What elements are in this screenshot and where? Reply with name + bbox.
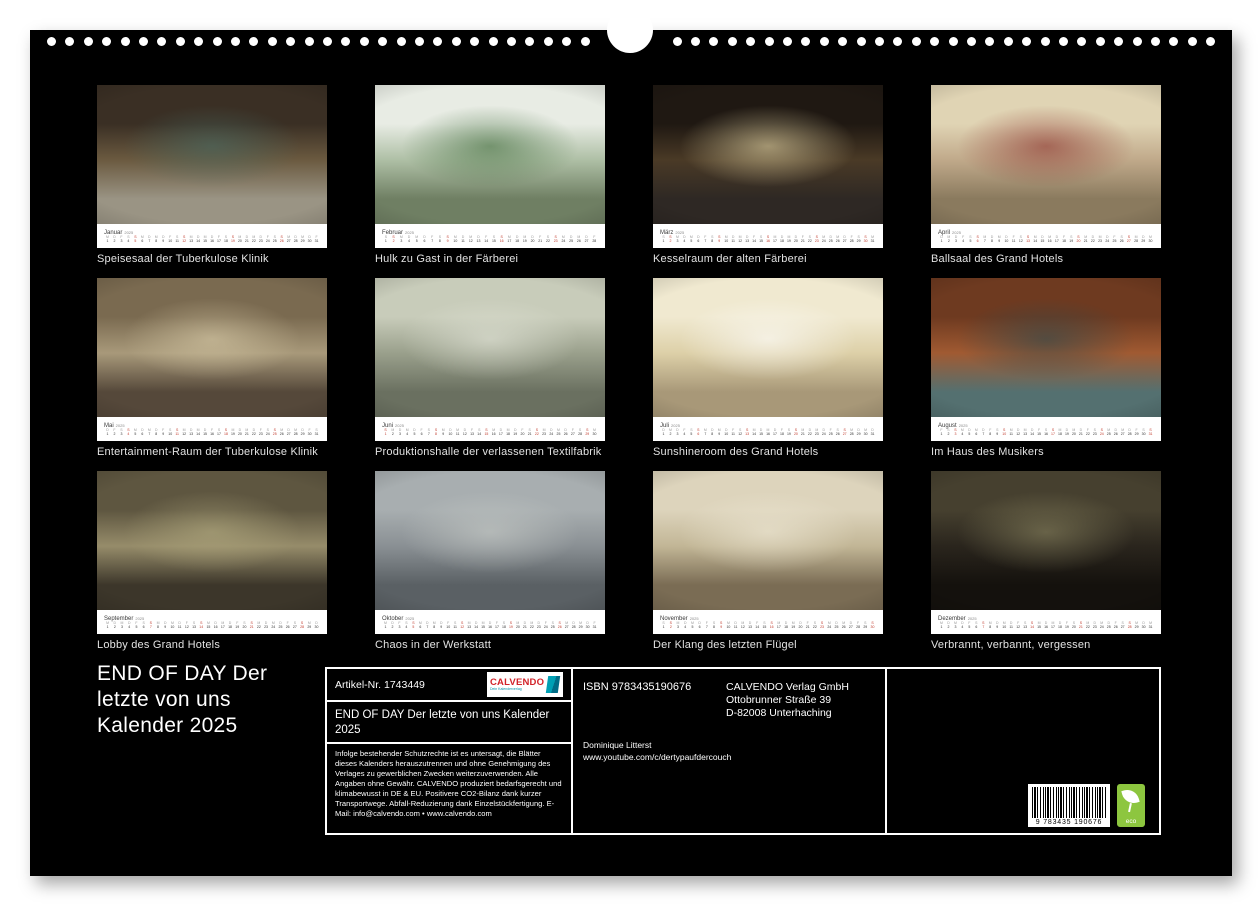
mini-calendar-day: M14 bbox=[751, 428, 758, 436]
mini-calendar-day: D18 bbox=[778, 235, 785, 243]
mini-calendar-day: S8 bbox=[709, 235, 716, 243]
month-photo bbox=[97, 471, 327, 610]
mini-calendar-day: F13 bbox=[468, 428, 475, 436]
mini-calendar-day: M27 bbox=[563, 621, 570, 629]
binding-hole bbox=[893, 37, 902, 46]
mini-calendar-strip: März2025 S1S2M3D4M5D6F7S8S9M10D11M12D13F… bbox=[653, 224, 883, 248]
mini-calendar-day: M12 bbox=[739, 621, 746, 629]
mini-calendar-day: D2 bbox=[111, 235, 118, 243]
mini-calendar-day: S4 bbox=[125, 428, 132, 436]
mini-calendar-day: D10 bbox=[447, 428, 454, 436]
calendar-title: END OF DAY Der letzte von uns Kalender 2… bbox=[97, 661, 267, 739]
mini-calendar-day: S23 bbox=[818, 621, 825, 629]
month-caption: Hulk zu Gast in der Färberei bbox=[375, 253, 605, 265]
mini-calendar-day: M29 bbox=[299, 235, 306, 243]
mini-calendar-day: M12 bbox=[181, 428, 188, 436]
mini-calendar-day: S8 bbox=[432, 428, 439, 436]
binding-hole bbox=[820, 37, 829, 46]
title-line-3: Kalender 2025 bbox=[97, 713, 267, 739]
month-caption: Verbrannt, verbannt, vergessen bbox=[931, 639, 1161, 651]
mini-calendar-day: D22 bbox=[806, 428, 813, 436]
mini-calendar-day: F28 bbox=[848, 235, 855, 243]
mini-calendar-day: M12 bbox=[467, 235, 475, 243]
mini-calendar-day: M6 bbox=[973, 428, 980, 436]
mini-calendar-day: M28 bbox=[292, 428, 299, 436]
mini-calendar-days: D1F2S3S4M5D6M7D8F9S10S11M12D13M14D15F16S… bbox=[104, 428, 320, 436]
mini-calendar-day: D23 bbox=[1091, 621, 1098, 629]
mini-calendar-day: S5 bbox=[967, 235, 974, 243]
mini-calendar-day: S14 bbox=[476, 428, 483, 436]
mini-calendar-day: S11 bbox=[174, 235, 181, 243]
mini-calendar-day: M26 bbox=[575, 235, 583, 243]
mini-calendar-day: M8 bbox=[153, 235, 160, 243]
mini-calendar-day: F31 bbox=[313, 235, 320, 243]
mini-calendar-day: M13 bbox=[466, 621, 473, 629]
mini-calendar-day: S15 bbox=[483, 428, 490, 436]
mini-calendar-day: F4 bbox=[681, 428, 688, 436]
mini-calendar-day: D18 bbox=[782, 621, 789, 629]
month-caption: Entertainment-Raum der Tuberkulose Klini… bbox=[97, 446, 327, 458]
title-line-2: letzte von uns bbox=[97, 687, 267, 713]
month-photo bbox=[97, 85, 327, 224]
mini-calendar-day: D7 bbox=[980, 428, 987, 436]
mini-calendar-days: M1D2M3D4F5S6S7M8D9M10D11F12S13S14M15D16M… bbox=[938, 621, 1154, 629]
mini-calendar-day: F27 bbox=[569, 428, 576, 436]
mini-calendar-day: D8 bbox=[988, 235, 995, 243]
mini-calendar-days: S1M2D3M4D5F6S7S8M9D10M11D12F13S14S15M16D… bbox=[382, 428, 598, 436]
mini-calendar-day: F18 bbox=[778, 428, 785, 436]
mini-calendar-day: S5 bbox=[688, 428, 695, 436]
mini-calendar-day: S19 bbox=[229, 235, 236, 243]
mini-calendar-day: S1 bbox=[382, 428, 389, 436]
calvendo-flag-icon bbox=[546, 676, 560, 693]
mini-calendar-day: M14 bbox=[195, 428, 202, 436]
mini-calendar-day: S24 bbox=[1098, 428, 1105, 436]
month-photo bbox=[97, 278, 327, 417]
mini-calendar-days: D1M2D3F4S5S6M7D8M9D10F11S12S13M14D15M16D… bbox=[938, 235, 1154, 243]
mini-calendar-day: D4 bbox=[959, 621, 966, 629]
mini-calendar-day: M5 bbox=[688, 235, 695, 243]
mini-calendar-day: S16 bbox=[765, 235, 772, 243]
binding-hole bbox=[397, 37, 406, 46]
mini-calendar-day: F31 bbox=[591, 621, 598, 629]
mini-calendar-day: M10 bbox=[451, 235, 459, 243]
mini-calendar-day: M16 bbox=[765, 428, 772, 436]
mini-calendar-day: M3 bbox=[397, 235, 405, 243]
calvendo-logo: CALVENDO Dein Kalenderverlag bbox=[487, 672, 563, 697]
mini-calendar-day: S7 bbox=[147, 621, 154, 629]
mini-calendar-day: M15 bbox=[1036, 621, 1043, 629]
mini-calendar-day: D22 bbox=[1089, 235, 1096, 243]
mini-calendar-day: M23 bbox=[1096, 235, 1103, 243]
mini-calendar-day: S13 bbox=[744, 428, 751, 436]
mini-calendar-day: S12 bbox=[181, 235, 188, 243]
mini-calendar-day: F21 bbox=[804, 621, 811, 629]
mini-calendar-day: M5 bbox=[132, 428, 139, 436]
mini-calendar-day: D13 bbox=[746, 621, 753, 629]
mini-calendar-day: D6 bbox=[139, 428, 146, 436]
mini-calendar-day: D14 bbox=[1029, 428, 1036, 436]
mini-calendar-day: S1 bbox=[382, 235, 390, 243]
mini-calendar-day: D13 bbox=[188, 428, 195, 436]
month-photo bbox=[375, 85, 605, 224]
mini-calendar-day: D23 bbox=[257, 235, 264, 243]
mini-calendar-day: F28 bbox=[854, 621, 861, 629]
mini-calendar-day: M1 bbox=[104, 621, 111, 629]
mini-calendar-day: S30 bbox=[869, 621, 876, 629]
mini-calendar-day: M7 bbox=[981, 235, 988, 243]
mini-calendar-day: M2 bbox=[945, 235, 952, 243]
mini-calendar-day: D5 bbox=[411, 428, 418, 436]
mini-calendar-day: F21 bbox=[799, 235, 806, 243]
author-url: www.youtube.com/c/dertypaufdercouch bbox=[583, 752, 875, 763]
mini-calendar-day: D13 bbox=[475, 235, 483, 243]
mini-calendar-day: M15 bbox=[480, 621, 487, 629]
mini-calendar-day: M25 bbox=[1105, 428, 1112, 436]
mini-calendar-day: M20 bbox=[236, 235, 243, 243]
mini-calendar-day: D30 bbox=[313, 621, 320, 629]
month-caption: Ballsaal des Grand Hotels bbox=[931, 253, 1161, 265]
month-caption: Lobby des Grand Hotels bbox=[97, 639, 327, 651]
month-cell: Dezember2025 M1D2M3D4F5S6S7M8D9M10D11F12… bbox=[931, 471, 1161, 651]
mini-calendar-day: S18 bbox=[500, 621, 507, 629]
mini-calendar-day: M18 bbox=[504, 428, 511, 436]
mini-calendar-day: S28 bbox=[576, 428, 583, 436]
mini-calendar-day: M21 bbox=[1082, 235, 1089, 243]
calvendo-logo-name: CALVENDO bbox=[490, 678, 544, 688]
mini-calendar-day: S20 bbox=[1070, 621, 1077, 629]
mini-calendar-day: S21 bbox=[526, 428, 533, 436]
binding-hole bbox=[1022, 37, 1031, 46]
binding-hole bbox=[249, 37, 258, 46]
binding-hole bbox=[121, 37, 130, 46]
mini-calendar-day: F9 bbox=[160, 428, 167, 436]
mini-calendar-strip: September2025 M1D2M3D4F5S6S7M8D9M10D11F1… bbox=[97, 610, 327, 634]
mini-calendar-day: M8 bbox=[431, 621, 438, 629]
mini-calendar-day: D11 bbox=[732, 621, 739, 629]
mini-calendar-day: D29 bbox=[855, 428, 862, 436]
mini-calendar-day: M4 bbox=[404, 428, 411, 436]
mini-calendar-day: F25 bbox=[1111, 235, 1118, 243]
binding-hole bbox=[305, 37, 314, 46]
binding-hole bbox=[452, 37, 461, 46]
mini-calendar-day: M8 bbox=[154, 621, 161, 629]
mini-calendar-day: D20 bbox=[792, 235, 799, 243]
mini-calendar-day: F21 bbox=[536, 235, 544, 243]
mini-calendar-day: M21 bbox=[243, 428, 250, 436]
mini-calendar-day: D18 bbox=[1056, 621, 1063, 629]
mini-calendar-day: D23 bbox=[535, 621, 542, 629]
mini-calendar-day: S22 bbox=[811, 621, 818, 629]
month-cell: März2025 S1S2M3D4M5D6F7S8S9M10D11M12D13F… bbox=[653, 85, 883, 265]
month-photo bbox=[375, 278, 605, 417]
mini-calendar-day: D11 bbox=[459, 235, 467, 243]
mini-calendar-day: M1 bbox=[104, 235, 111, 243]
mini-calendar-strip: Mai2025 D1F2S3S4M5D6M7D8F9S10S11M12D13M1… bbox=[97, 417, 327, 441]
mini-calendar-day: S14 bbox=[1029, 621, 1036, 629]
mini-calendar-day: S19 bbox=[1068, 235, 1075, 243]
mini-calendar-day: S20 bbox=[241, 621, 248, 629]
mini-calendar-day: S15 bbox=[490, 235, 498, 243]
mini-calendar-day: D7 bbox=[424, 621, 431, 629]
mini-calendar-day: D23 bbox=[262, 621, 269, 629]
mini-calendar-day: D25 bbox=[833, 621, 840, 629]
mini-calendar-day: M12 bbox=[737, 235, 744, 243]
month-cell: Oktober2025 M1D2F3S4S5M6D7M8D9F10S11S12M… bbox=[375, 471, 605, 651]
month-caption: Speisesaal der Tuberkulose Klinik bbox=[97, 253, 327, 265]
mini-calendar-day: S6 bbox=[974, 235, 981, 243]
mini-calendar-days: F1S2S3M4D5M6D7F8S9S10M11D12M13D14F15S16S… bbox=[938, 428, 1154, 436]
mini-calendar-day: D15 bbox=[202, 428, 209, 436]
mini-calendar-day: M26 bbox=[278, 428, 285, 436]
mini-calendar-day: M10 bbox=[1001, 621, 1008, 629]
mini-calendar-day: M26 bbox=[840, 621, 847, 629]
mini-calendar-day: D6 bbox=[421, 235, 429, 243]
publisher-address: CALVENDO Verlag GmbH Ottobrunner Straße … bbox=[726, 681, 849, 720]
mini-calendar-day: M15 bbox=[205, 621, 212, 629]
binding-hole bbox=[323, 37, 332, 46]
binding-hole bbox=[194, 37, 203, 46]
mini-calendar-day: F5 bbox=[966, 621, 973, 629]
month-photo bbox=[653, 278, 883, 417]
mini-calendar-day: D19 bbox=[512, 428, 519, 436]
mini-calendar-day: M22 bbox=[250, 235, 257, 243]
mini-calendar-day: M24 bbox=[560, 235, 568, 243]
mini-calendar-day: D29 bbox=[299, 428, 306, 436]
mini-calendar-day: S9 bbox=[716, 235, 723, 243]
mini-calendar-day: M6 bbox=[417, 621, 424, 629]
mini-calendar-strip: Dezember2025 M1D2M3D4F5S6S7M8D9M10D11F12… bbox=[931, 610, 1161, 634]
mini-calendar-day: D19 bbox=[1063, 428, 1070, 436]
mini-calendar-day: S17 bbox=[216, 428, 223, 436]
mini-calendar-day: M11 bbox=[454, 428, 461, 436]
mini-calendar-day: D16 bbox=[212, 621, 219, 629]
mini-calendar-day: S25 bbox=[549, 621, 556, 629]
mini-calendar-day: D16 bbox=[1043, 621, 1050, 629]
mini-calendar-day: S15 bbox=[761, 621, 768, 629]
mini-calendar-day: S12 bbox=[459, 621, 466, 629]
mini-calendar-day: M10 bbox=[723, 235, 730, 243]
mini-calendar-day: M5 bbox=[413, 235, 421, 243]
mini-calendar-day: D9 bbox=[160, 235, 167, 243]
month-photo bbox=[375, 471, 605, 610]
mini-calendar-day: S18 bbox=[222, 235, 229, 243]
mini-calendar-day: S29 bbox=[862, 621, 869, 629]
mini-calendar-strip: Oktober2025 M1D2F3S4S5M6D7M8D9F10S11S12M… bbox=[375, 610, 605, 634]
month-photo bbox=[931, 85, 1161, 224]
binding-hole bbox=[581, 37, 590, 46]
mini-calendar-day: F18 bbox=[1060, 235, 1067, 243]
mini-calendar-day: S25 bbox=[271, 235, 278, 243]
mini-calendar-day: D24 bbox=[548, 428, 555, 436]
mini-calendar-day: D28 bbox=[1126, 428, 1133, 436]
mini-calendar-day: F1 bbox=[938, 428, 945, 436]
mini-calendar-day: D21 bbox=[243, 235, 250, 243]
mini-calendar-day: S11 bbox=[452, 621, 459, 629]
mini-calendar-day: S27 bbox=[291, 621, 298, 629]
mini-calendar-day: M7 bbox=[146, 428, 153, 436]
binding-hole bbox=[1096, 37, 1105, 46]
mini-calendar-day: F24 bbox=[264, 235, 271, 243]
mini-calendar-day: M30 bbox=[591, 428, 598, 436]
mini-calendar-day: D3 bbox=[674, 428, 681, 436]
mini-calendar-day: S5 bbox=[132, 235, 139, 243]
mini-calendar-day: D18 bbox=[226, 621, 233, 629]
mini-calendar-day: S23 bbox=[552, 235, 560, 243]
mini-calendar-day: F14 bbox=[482, 235, 490, 243]
binding-hole bbox=[360, 37, 369, 46]
eco-label: eco bbox=[1117, 818, 1145, 825]
binding-hole bbox=[102, 37, 111, 46]
mini-calendar-day: S20 bbox=[792, 428, 799, 436]
mini-calendar-day: D12 bbox=[461, 428, 468, 436]
mini-calendar-days: M1D2F3S4S5M6D7M8D9F10S11S12M13D14M15D16F… bbox=[104, 235, 320, 243]
mini-calendar-day: F16 bbox=[209, 428, 216, 436]
mini-calendar-day: M17 bbox=[772, 235, 779, 243]
mini-calendar-day: S22 bbox=[544, 235, 552, 243]
mini-calendar-day: M18 bbox=[1056, 428, 1063, 436]
mini-calendar-day: F2 bbox=[111, 428, 118, 436]
mini-calendar-day: M3 bbox=[674, 621, 681, 629]
mini-calendar-day: D25 bbox=[567, 235, 575, 243]
binding-hole bbox=[912, 37, 921, 46]
mini-calendar-days: M1D2M3D4F5S6S7M8D9M10D11F12S13S14M15D16M… bbox=[104, 621, 320, 629]
mini-calendar-day: M30 bbox=[1147, 235, 1154, 243]
mini-calendar-day: S31 bbox=[1147, 428, 1154, 436]
mini-calendar-day: S7 bbox=[980, 621, 987, 629]
mini-calendar-day: D4 bbox=[682, 621, 689, 629]
mini-calendar-day: S2 bbox=[667, 235, 674, 243]
binding-hole bbox=[1041, 37, 1050, 46]
mini-calendar-day: F10 bbox=[167, 235, 174, 243]
month-photo bbox=[653, 471, 883, 610]
mini-calendar-day: M22 bbox=[528, 621, 535, 629]
publisher-line-1: CALVENDO Verlag GmbH bbox=[726, 681, 849, 694]
mini-calendar-days: S1S2M3D4M5D6F7S8S9M10D11M12D13F14S15S16M… bbox=[382, 235, 598, 243]
mini-calendar-day: F19 bbox=[1063, 621, 1070, 629]
mini-calendar-days: D1M2D3F4S5S6M7D8M9D10F11S12S13M14D15M16D… bbox=[660, 428, 876, 436]
mini-calendar-day: S13 bbox=[1022, 621, 1029, 629]
binding-hole bbox=[341, 37, 350, 46]
mini-calendar-day: S21 bbox=[1077, 621, 1084, 629]
mini-calendar-day: F15 bbox=[1036, 428, 1043, 436]
mini-calendar-day: D16 bbox=[487, 621, 494, 629]
binding-hole bbox=[415, 37, 424, 46]
mini-calendar-day: S16 bbox=[1043, 428, 1050, 436]
mini-calendar-day: M27 bbox=[1119, 428, 1126, 436]
mini-calendar-day: D1 bbox=[104, 428, 111, 436]
mini-calendar-days: S1S2M3D4M5D6F7S8S9M10D11M12D13F14S15S16M… bbox=[660, 621, 876, 629]
mini-calendar-day: M15 bbox=[202, 235, 209, 243]
mini-calendar-day: D8 bbox=[709, 428, 716, 436]
mini-calendar-day: M30 bbox=[862, 428, 869, 436]
binding-hole bbox=[544, 37, 553, 46]
mini-calendar-day: D26 bbox=[1112, 428, 1119, 436]
month-cell: Januar2025 M1D2F3S4S5M6D7M8D9F10S11S12M1… bbox=[97, 85, 327, 265]
mini-calendar-day: S10 bbox=[1001, 428, 1008, 436]
mini-calendar-day: D30 bbox=[306, 235, 313, 243]
mini-calendar-day: D4 bbox=[405, 235, 413, 243]
mini-calendar-strip: April2025 D1M2D3F4S5S6M7D8M9D10F11S12S13… bbox=[931, 224, 1161, 248]
mini-calendar-day: M10 bbox=[725, 621, 732, 629]
publisher-line-3: D-82008 Unterhaching bbox=[726, 707, 849, 720]
mini-calendar-day: D3 bbox=[396, 428, 403, 436]
mini-calendar-day: S13 bbox=[1024, 235, 1031, 243]
mini-calendar-day: S26 bbox=[834, 428, 841, 436]
month-caption: Produktionshalle der verlassenen Textilf… bbox=[375, 446, 605, 458]
mini-calendar-day: M19 bbox=[785, 235, 792, 243]
mini-calendar-day: M3 bbox=[118, 621, 125, 629]
mini-calendar-day: M23 bbox=[540, 428, 547, 436]
month-thumbnail-grid: Januar2025 M1D2F3S4S5M6D7M8D9F10S11S12M1… bbox=[97, 85, 1161, 651]
mini-calendar-day: S2 bbox=[390, 235, 398, 243]
mini-calendar-day: M17 bbox=[506, 235, 514, 243]
article-number-cell: Artikel-Nr. 1743449 CALVENDO Dein Kalend… bbox=[327, 669, 571, 702]
mini-calendar-day: F12 bbox=[183, 621, 190, 629]
binding-hole bbox=[84, 37, 93, 46]
mini-calendar-day: D1 bbox=[660, 428, 667, 436]
month-cell: September2025 M1D2M3D4F5S6S7M8D9M10D11F1… bbox=[97, 471, 327, 651]
mini-calendar-day: S1 bbox=[660, 621, 667, 629]
mini-calendar-strip: Juni2025 S1M2D3M4D5F6S7S8M9D10M11D12F13S… bbox=[375, 417, 605, 441]
mini-calendar-day: F17 bbox=[216, 235, 223, 243]
binding-hole bbox=[1077, 37, 1086, 46]
mini-calendar-day: F10 bbox=[445, 621, 452, 629]
mini-calendar-day: M16 bbox=[1046, 235, 1053, 243]
publisher-line-2: Ottobrunner Straße 39 bbox=[726, 694, 849, 707]
mini-calendar-day: M20 bbox=[514, 621, 521, 629]
mini-calendar-day: M19 bbox=[790, 621, 797, 629]
mini-calendar-day: M13 bbox=[1022, 428, 1029, 436]
article-number: Artikel-Nr. 1743449 bbox=[335, 679, 425, 691]
isbn: ISBN 9783435190676 bbox=[583, 681, 726, 720]
mini-calendar-day: S8 bbox=[710, 621, 717, 629]
mini-calendar-day: S3 bbox=[118, 428, 125, 436]
mini-calendar-day: D25 bbox=[277, 621, 284, 629]
imprint-right-column: 9 783435 190676 eco bbox=[887, 669, 1159, 833]
month-cell: Februar2025 S1S2M3D4M5D6F7S8S9M10D11M12D… bbox=[375, 85, 605, 265]
binding-hole bbox=[985, 37, 994, 46]
mini-calendar-day: M31 bbox=[869, 235, 876, 243]
mini-calendar-day: S5 bbox=[410, 621, 417, 629]
mini-calendar-day: S16 bbox=[498, 235, 506, 243]
mini-calendar-day: S25 bbox=[271, 428, 278, 436]
mini-calendar-day: D10 bbox=[1003, 235, 1010, 243]
mini-calendar-day: M21 bbox=[799, 428, 806, 436]
legal-text: Infolge bestehender Schutzrechte ist es … bbox=[327, 744, 571, 833]
mini-calendar-day: S26 bbox=[556, 621, 563, 629]
binding-hole bbox=[1004, 37, 1013, 46]
mini-calendar-day: M9 bbox=[440, 428, 447, 436]
mini-calendar-day: D10 bbox=[723, 428, 730, 436]
mini-calendar-day: S27 bbox=[1119, 621, 1126, 629]
mini-calendar-day: S13 bbox=[190, 621, 197, 629]
binding-hole bbox=[562, 37, 571, 46]
title-line-1: END OF DAY Der bbox=[97, 661, 267, 687]
binding-hole bbox=[176, 37, 185, 46]
mini-calendar-day: M4 bbox=[959, 428, 966, 436]
mini-calendar-day: S30 bbox=[1140, 428, 1147, 436]
mini-calendar-day: S26 bbox=[1118, 235, 1125, 243]
binding-hole bbox=[783, 37, 792, 46]
eco-badge: eco bbox=[1117, 784, 1145, 827]
binding-hole bbox=[1206, 37, 1215, 46]
mini-calendar-day: D18 bbox=[513, 235, 521, 243]
author-name: Dominique Litterst bbox=[583, 740, 875, 751]
binding-hole bbox=[507, 37, 516, 46]
binding-hole bbox=[857, 37, 866, 46]
binding-hole bbox=[1114, 37, 1123, 46]
